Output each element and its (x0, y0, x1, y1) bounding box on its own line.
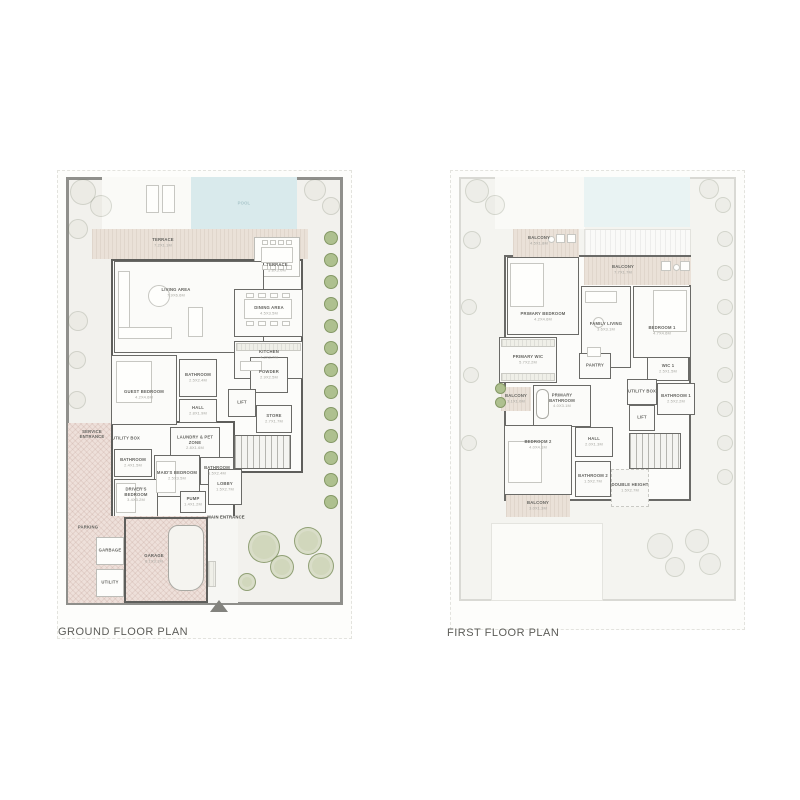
tree-icon (270, 555, 294, 579)
furniture-icon (148, 285, 170, 307)
floor-plans-page: POOLTERRACE7.2X1.1MTERRACE5.8X3.0MLIVING… (0, 0, 800, 800)
tree-icon (324, 473, 338, 487)
tree-sketch-icon (699, 553, 721, 575)
tree-icon (324, 385, 338, 399)
first-floor-plan: BALCONY4.5X1.8MBALCONY7.7X1.7MPRIMARY BE… (450, 170, 745, 630)
tree-sketch-icon (717, 469, 733, 485)
furniture-icon (510, 263, 544, 307)
room-lift (228, 389, 256, 417)
tree-icon (495, 397, 506, 408)
tree-sketch-icon (461, 299, 477, 315)
counter-icon (208, 561, 216, 587)
furniture-icon (258, 321, 266, 326)
tree-sketch-icon (685, 529, 709, 553)
ghost-zone (491, 523, 603, 601)
room-utility (96, 569, 124, 597)
tree-sketch-icon (68, 219, 88, 239)
tree-icon (324, 275, 338, 289)
tree-icon (324, 495, 338, 509)
ground-floor-plan-title: GROUND FLOOR PLAN (58, 626, 188, 638)
furniture-icon (146, 185, 159, 213)
ground-plan-layer: POOLTERRACE7.2X1.1MTERRACE5.8X3.0MLIVING… (58, 171, 351, 638)
first-floor-plan-title: FIRST FLOOR PLAN (447, 627, 559, 639)
north-arrow-icon (210, 600, 228, 612)
tree-icon (324, 231, 338, 245)
tree-sketch-icon (90, 195, 112, 217)
furniture-icon (587, 347, 601, 357)
furniture-icon (548, 236, 555, 243)
first-plan-layer: BALCONY4.5X1.8MBALCONY7.7X1.7MPRIMARY BE… (451, 171, 744, 629)
room-hall (179, 399, 217, 423)
counter-icon (501, 373, 555, 381)
furniture-icon (270, 293, 278, 298)
furniture-icon (508, 441, 542, 483)
tree-icon (294, 527, 322, 555)
room-wic-1 (647, 357, 689, 381)
tree-icon (238, 573, 256, 591)
room-garbage (96, 537, 124, 565)
poolfaint-zone (584, 177, 690, 227)
furniture-icon (156, 461, 176, 493)
room-bathroom-1 (657, 383, 695, 415)
furniture-icon (188, 307, 203, 337)
tree-icon (324, 429, 338, 443)
room-hall-f (575, 427, 613, 457)
tree-icon (324, 451, 338, 465)
tree-sketch-icon (665, 557, 685, 577)
counter-icon (501, 339, 555, 347)
tree-sketch-icon (68, 351, 86, 369)
furniture-icon (262, 240, 268, 245)
tree-sketch-icon (461, 435, 477, 451)
room-store (256, 405, 292, 433)
staircase (234, 435, 291, 469)
tree-icon (324, 341, 338, 355)
tree-sketch-icon (717, 299, 733, 315)
furniture-icon (270, 321, 278, 326)
furniture-icon (282, 321, 290, 326)
room-pump (180, 491, 206, 513)
tree-sketch-icon (463, 231, 481, 249)
furniture-icon (261, 247, 293, 263)
furniture-icon (240, 361, 262, 371)
furniture-icon (556, 234, 565, 243)
bathtub-icon (536, 389, 549, 419)
furniture-icon (246, 293, 254, 298)
furniture-icon (258, 293, 266, 298)
furniture-icon (282, 293, 290, 298)
tree-sketch-icon (68, 391, 86, 409)
room-utility-box-f (627, 379, 657, 405)
furniture-icon (118, 327, 172, 339)
furniture-icon (680, 261, 690, 271)
tree-sketch-icon (68, 311, 88, 331)
room-balcony-4 (506, 495, 570, 517)
tree-icon (324, 297, 338, 311)
furniture-icon (653, 290, 687, 332)
furniture-icon (162, 185, 175, 213)
furniture-icon (673, 264, 680, 271)
car-icon (168, 525, 204, 591)
furniture-icon (270, 265, 276, 270)
room-bathroom-maids (114, 449, 152, 477)
tree-sketch-icon (717, 435, 733, 451)
room-lobby (208, 469, 242, 505)
tree-icon (324, 319, 338, 333)
tree-sketch-icon (304, 179, 326, 201)
room-pool (191, 177, 297, 231)
zonelight-zone (208, 516, 238, 603)
furniture-icon (116, 361, 152, 403)
room-balcony-2 (584, 257, 691, 285)
tree-sketch-icon (717, 401, 733, 417)
furniture-icon (286, 240, 292, 245)
room-double-height (611, 469, 649, 507)
furniture-icon (278, 265, 284, 270)
furniture-icon (567, 234, 576, 243)
tree-icon (324, 363, 338, 377)
furniture-icon (661, 261, 671, 271)
tree-icon (324, 253, 338, 267)
tree-sketch-icon (717, 333, 733, 349)
slats-zone (584, 229, 691, 257)
furniture-icon (270, 240, 276, 245)
room-bathroom-guest (179, 359, 217, 397)
tree-sketch-icon (322, 197, 340, 215)
tree-icon (308, 553, 334, 579)
furniture-icon (116, 483, 136, 513)
furniture-icon (585, 291, 617, 303)
tree-sketch-icon (647, 533, 673, 559)
furniture-icon (118, 271, 130, 333)
tree-icon (324, 407, 338, 421)
furniture-icon (286, 265, 292, 270)
furniture-icon (278, 240, 284, 245)
tree-sketch-icon (717, 367, 733, 383)
furniture-icon (246, 321, 254, 326)
furniture-icon (244, 299, 292, 319)
roof-zone (495, 177, 585, 229)
tree-sketch-icon (715, 197, 731, 213)
tree-sketch-icon (717, 265, 733, 281)
tree-icon (495, 383, 506, 394)
counter-icon (236, 343, 301, 351)
furniture-icon (593, 317, 604, 328)
furniture-icon (262, 265, 268, 270)
tree-sketch-icon (485, 195, 505, 215)
staircase (629, 433, 681, 469)
ground-floor-plan: POOLTERRACE7.2X1.1MTERRACE5.8X3.0MLIVING… (57, 170, 352, 639)
tree-sketch-icon (717, 231, 733, 247)
room-lift-f (629, 405, 655, 431)
tree-sketch-icon (699, 179, 719, 199)
parking-zone (68, 423, 111, 519)
tree-sketch-icon (463, 367, 479, 383)
room-bathroom-2 (575, 461, 611, 497)
